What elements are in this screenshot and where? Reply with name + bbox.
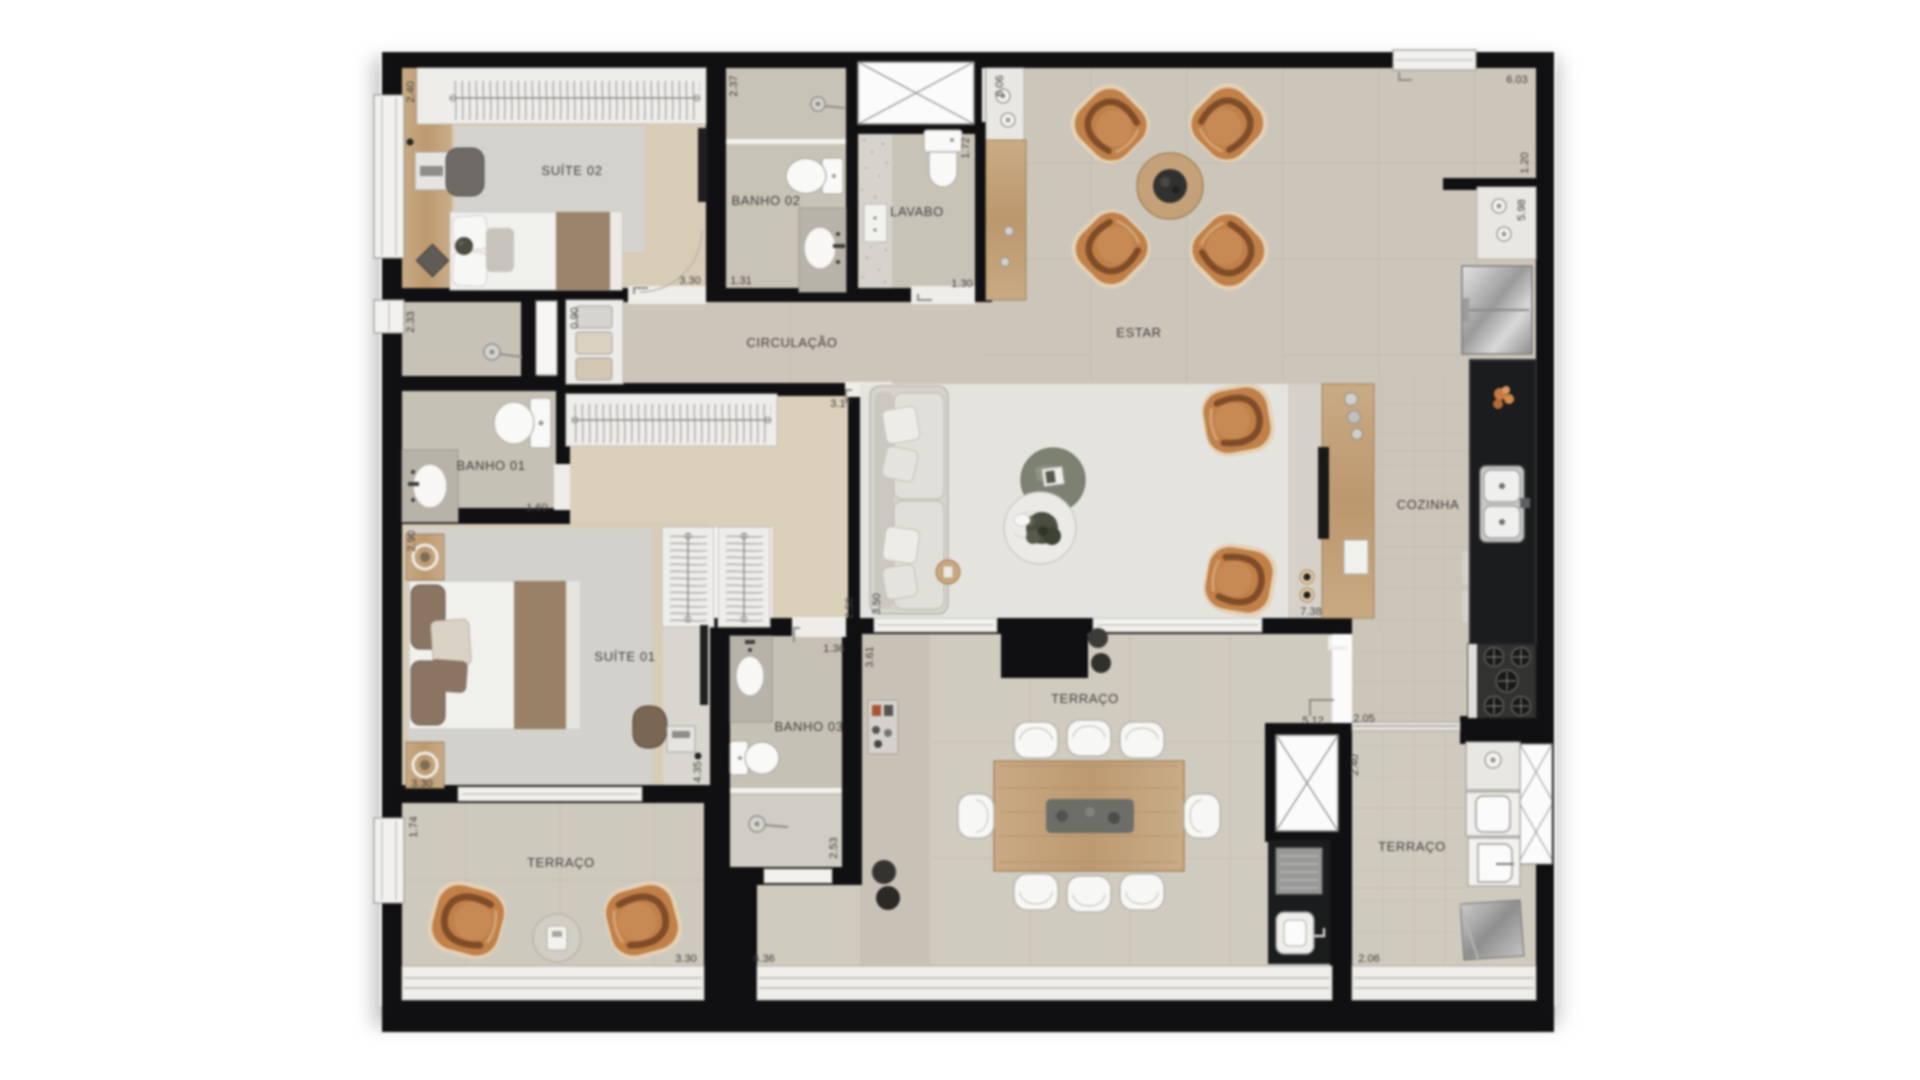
svg-text:2.40: 2.40 [405,81,417,102]
svg-text:3.50: 3.50 [871,593,883,614]
svg-text:2.50: 2.50 [844,597,856,618]
svg-text:1.31: 1.31 [730,275,751,287]
svg-text:3.30: 3.30 [411,778,432,790]
svg-text:6.36: 6.36 [753,953,774,965]
svg-text:TERRAÇO: TERRAÇO [1051,691,1119,706]
svg-text:3.30: 3.30 [675,953,696,965]
svg-text:BANHO 03: BANHO 03 [774,719,843,734]
svg-text:TERRAÇO: TERRAÇO [1378,839,1446,854]
svg-text:6.03: 6.03 [1506,74,1527,86]
svg-text:1.72: 1.72 [960,137,972,158]
svg-text:5.98: 5.98 [1516,199,1528,220]
svg-text:SUÍTE 01: SUÍTE 01 [594,649,655,664]
svg-text:BANHO 01: BANHO 01 [456,458,525,473]
svg-text:3.30: 3.30 [679,275,700,287]
svg-text:2.37: 2.37 [728,75,740,96]
svg-text:2.90: 2.90 [406,530,418,551]
svg-text:1.74: 1.74 [408,816,420,837]
svg-text:3.61: 3.61 [864,646,876,667]
svg-text:4.35: 4.35 [692,761,704,782]
svg-text:1.36: 1.36 [823,643,844,655]
svg-text:TERRAÇO: TERRAÇO [527,855,595,870]
svg-text:7.38: 7.38 [1300,606,1321,618]
svg-text:LAVABO: LAVABO [890,204,944,219]
svg-text:2.53: 2.53 [828,837,840,858]
svg-text:BANHO 02: BANHO 02 [731,193,800,208]
svg-text:2.40: 2.40 [1349,754,1361,775]
svg-text:1.30: 1.30 [951,278,972,290]
svg-text:6.06: 6.06 [994,75,1006,96]
svg-text:SUÍTE 02: SUÍTE 02 [541,163,602,178]
svg-text:1.60: 1.60 [526,502,547,514]
svg-text:ESTAR: ESTAR [1116,325,1161,340]
svg-text:2.05: 2.05 [1353,713,1374,725]
svg-text:CIRCULAÇÃO: CIRCULAÇÃO [746,335,837,350]
svg-text:5.12: 5.12 [1302,715,1323,727]
svg-text:2.06: 2.06 [1358,953,1379,965]
svg-text:0.90: 0.90 [569,307,581,328]
svg-text:COZINHA: COZINHA [1397,497,1460,512]
svg-text:3.17: 3.17 [830,398,851,410]
svg-text:1.20: 1.20 [1519,152,1531,173]
svg-text:2.33: 2.33 [405,311,417,332]
